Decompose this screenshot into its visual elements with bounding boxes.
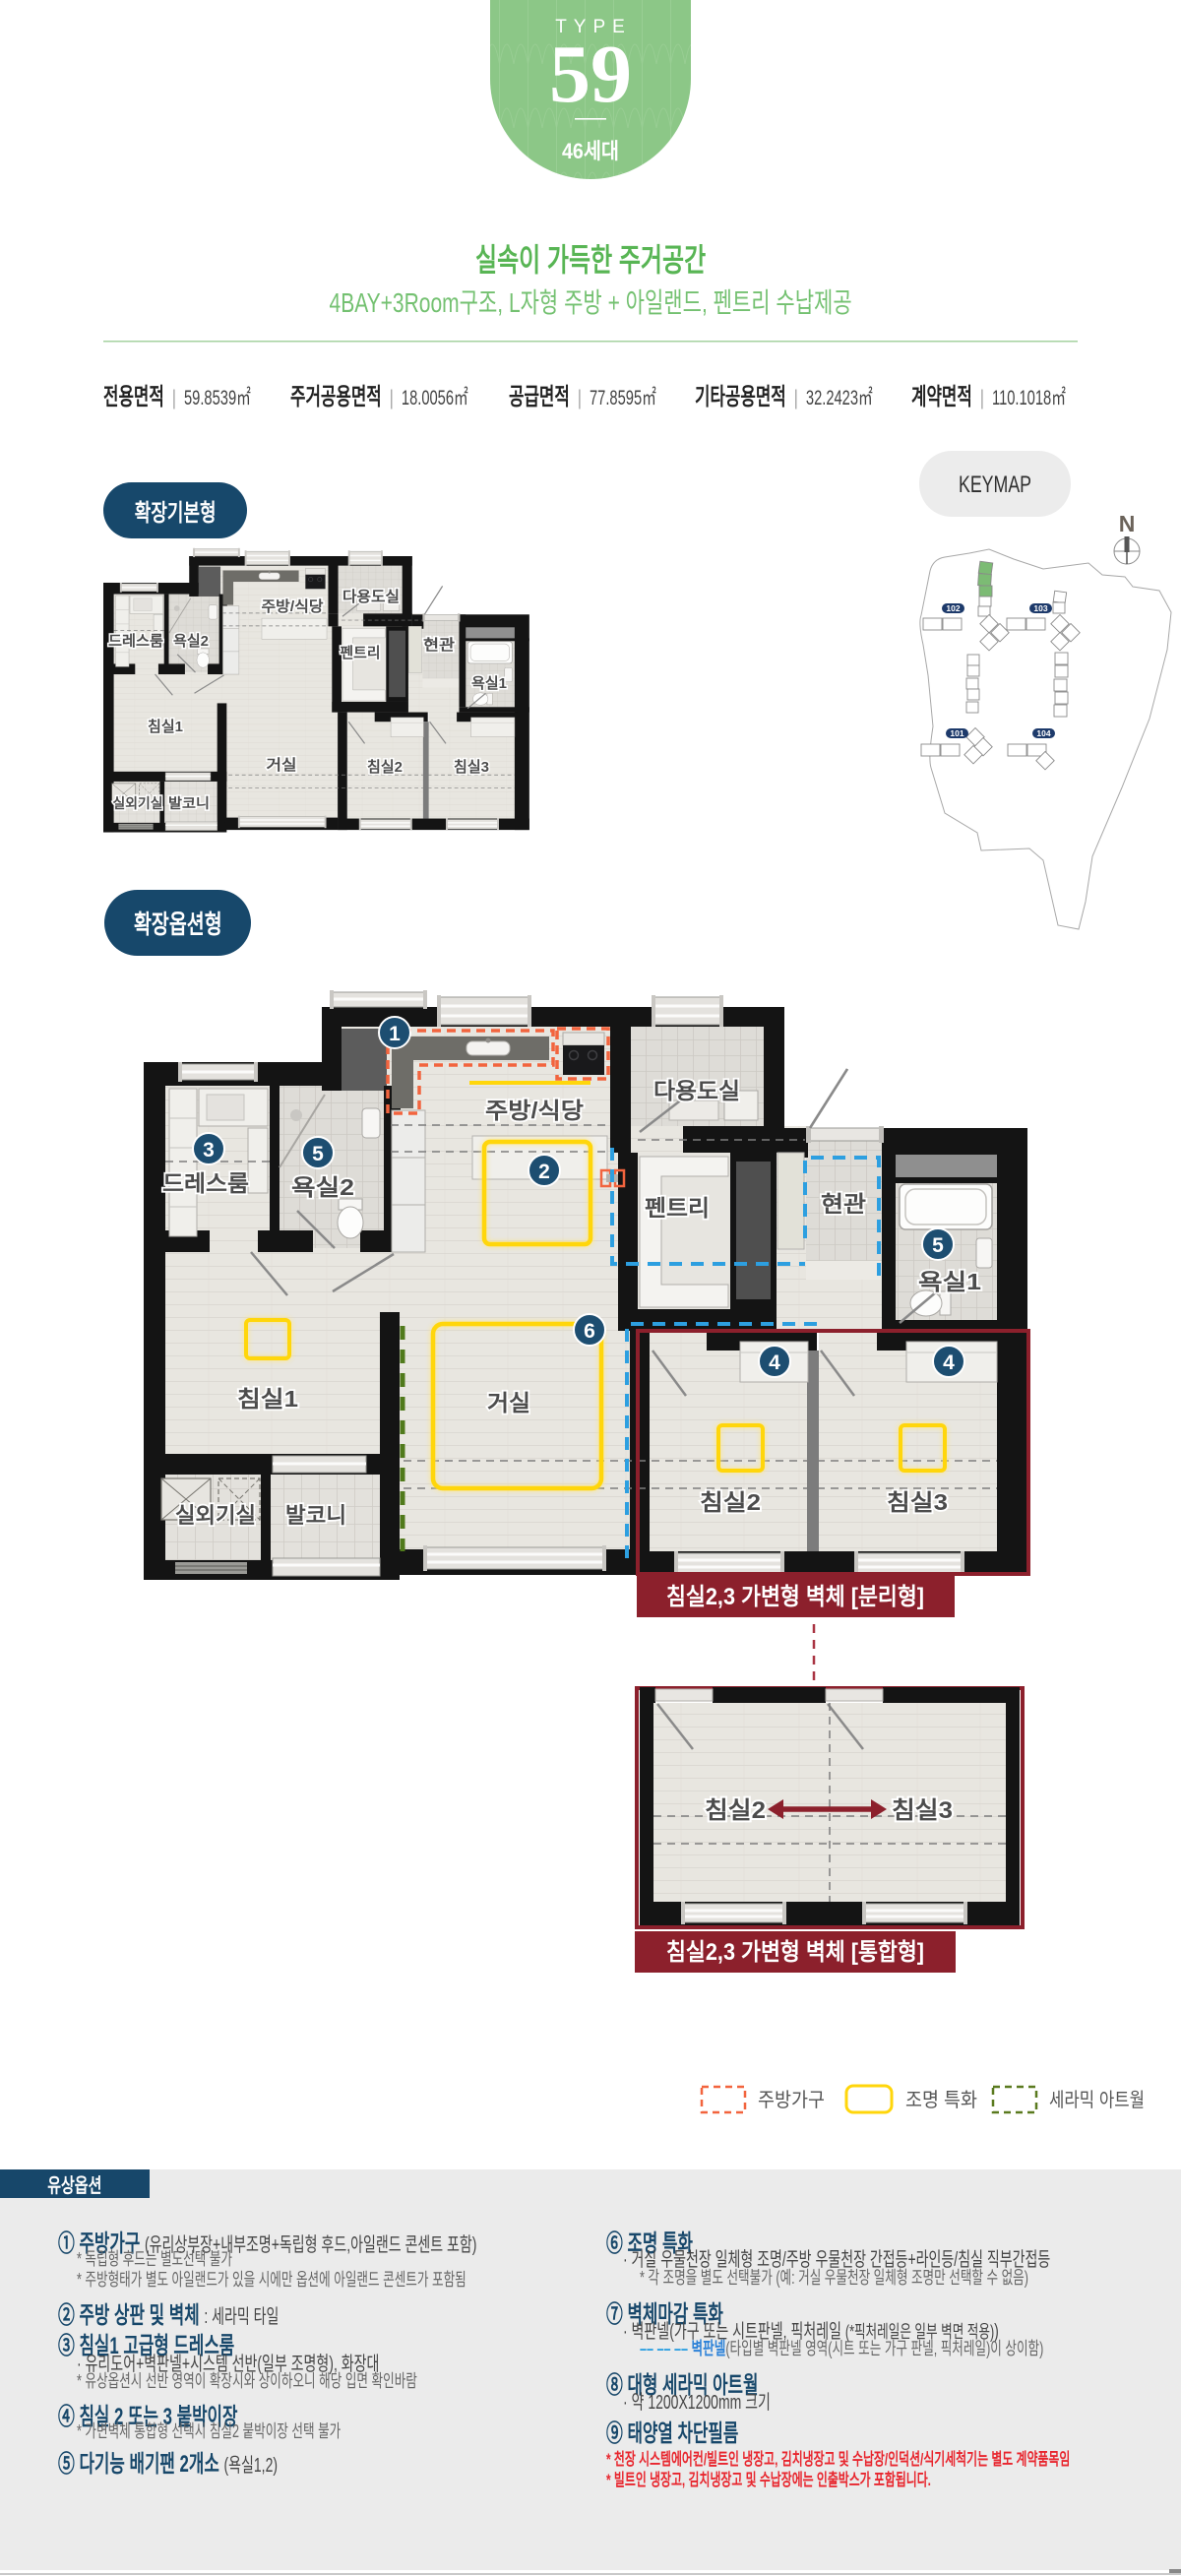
svg-text:침실3: 침실3 bbox=[887, 1489, 948, 1515]
svg-text:침실3: 침실3 bbox=[892, 1797, 953, 1824]
svg-text:101: 101 bbox=[950, 728, 963, 738]
svg-text:드레스룸: 드레스룸 bbox=[162, 1170, 249, 1196]
svg-text:현관: 현관 bbox=[821, 1191, 866, 1217]
svg-text:발코니: 발코니 bbox=[285, 1503, 346, 1528]
svg-text:5: 5 bbox=[312, 1143, 324, 1165]
svg-text:다용도실: 다용도실 bbox=[653, 1078, 740, 1103]
svg-text:실외기실: 실외기실 bbox=[113, 795, 163, 811]
svg-text:펜트리: 펜트리 bbox=[341, 645, 381, 661]
svg-text:펜트리: 펜트리 bbox=[645, 1195, 710, 1221]
svg-text:102: 102 bbox=[946, 603, 960, 613]
svg-text:주방가구: 주방가구 bbox=[758, 2089, 825, 2111]
svg-text:103: 103 bbox=[1033, 603, 1047, 613]
svg-text:3: 3 bbox=[203, 1139, 215, 1162]
svg-text:실외기실: 실외기실 bbox=[175, 1503, 256, 1528]
svg-text:거실: 거실 bbox=[487, 1390, 530, 1415]
svg-text:5: 5 bbox=[932, 1234, 944, 1257]
svg-text:발코니: 발코니 bbox=[168, 795, 210, 811]
svg-text:KEYMAP: KEYMAP bbox=[959, 471, 1031, 498]
svg-text:침실3: 침실3 bbox=[454, 759, 489, 776]
svg-text:욕실2: 욕실2 bbox=[291, 1174, 354, 1200]
svg-text:현관: 현관 bbox=[423, 637, 455, 654]
svg-text:주방/식당: 주방/식당 bbox=[485, 1098, 584, 1123]
svg-text:욕실2: 욕실2 bbox=[173, 633, 209, 650]
svg-text:침실1: 침실1 bbox=[148, 719, 183, 735]
svg-text:N: N bbox=[1119, 511, 1136, 536]
svg-text:침실2: 침실2 bbox=[705, 1797, 766, 1824]
svg-text:46세대: 46세대 bbox=[562, 139, 619, 163]
svg-text:욕실1: 욕실1 bbox=[918, 1269, 981, 1294]
svg-text:조명 특화: 조명 특화 bbox=[905, 2089, 977, 2111]
svg-text:거실: 거실 bbox=[267, 757, 297, 774]
svg-text:침실2,3 가변형 벽체 [통합형]: 침실2,3 가변형 벽체 [통합형] bbox=[666, 1939, 924, 1966]
svg-text:2: 2 bbox=[538, 1161, 550, 1183]
svg-text:주방/식당: 주방/식당 bbox=[262, 597, 324, 615]
svg-text:다용도실: 다용도실 bbox=[342, 589, 400, 605]
svg-text:침실1: 침실1 bbox=[237, 1386, 298, 1412]
svg-text:4: 4 bbox=[769, 1351, 780, 1374]
svg-text:드레스룸: 드레스룸 bbox=[108, 633, 163, 650]
svg-text:침실2: 침실2 bbox=[700, 1489, 761, 1515]
svg-text:침실2,3 가변형 벽체 [분리형]: 침실2,3 가변형 벽체 [분리형] bbox=[666, 1584, 924, 1610]
svg-text:1: 1 bbox=[389, 1023, 401, 1045]
svg-text:59: 59 bbox=[549, 29, 632, 120]
svg-text:4: 4 bbox=[943, 1351, 955, 1374]
svg-text:104: 104 bbox=[1036, 728, 1050, 738]
svg-text:침실2: 침실2 bbox=[367, 759, 403, 776]
svg-text:세라믹 아트월: 세라믹 아트월 bbox=[1049, 2089, 1145, 2111]
svg-text:욕실1: 욕실1 bbox=[471, 675, 507, 692]
svg-text:6: 6 bbox=[584, 1320, 595, 1343]
